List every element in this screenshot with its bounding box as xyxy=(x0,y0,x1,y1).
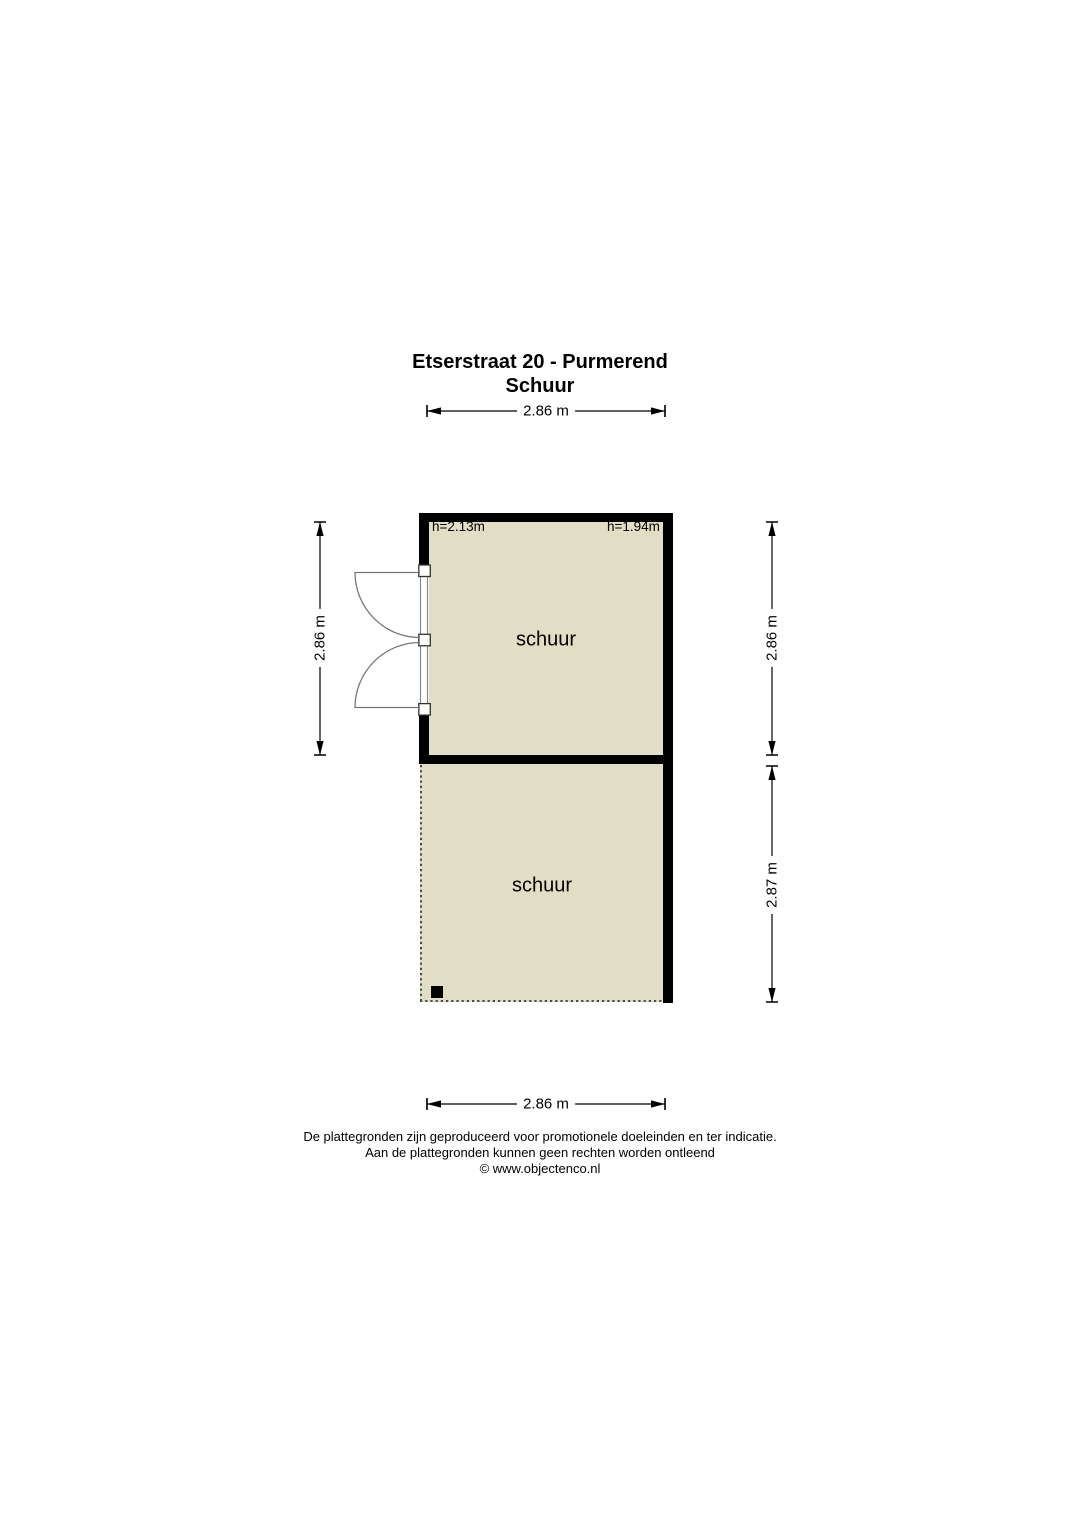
wall-right xyxy=(663,513,673,1003)
door-jamb-top xyxy=(419,565,431,577)
door-leaf-lower-swing xyxy=(355,643,420,708)
dimension-label-right-lower: 2.87 m xyxy=(764,856,781,914)
room-label-lower-schuur: schuur xyxy=(512,875,572,898)
footer-line-3: © www.objectenco.nl xyxy=(0,1161,1080,1177)
footer-line-1: De plattegronden zijn geproduceerd voor … xyxy=(0,1129,1080,1145)
floorplan-drawing xyxy=(0,0,1080,1527)
door-jamb-bottom xyxy=(419,704,431,716)
wall-divider xyxy=(419,755,673,764)
floorplan-page: Etserstraat 20 - Purmerend Schuur xyxy=(0,0,1080,1527)
wall-left-upper-segment xyxy=(419,513,429,571)
footer-line-2: Aan de plattegronden kunnen geen rechten… xyxy=(0,1145,1080,1161)
ceiling-height-right: h=1.94m xyxy=(607,519,660,534)
door-jamb-middle xyxy=(419,634,431,646)
dimension-label-bottom: 2.86 m xyxy=(517,1096,575,1113)
ceiling-height-left: h=2.13m xyxy=(432,519,485,534)
footer-disclaimer: De plattegronden zijn geproduceerd voor … xyxy=(0,1129,1080,1177)
double-door xyxy=(355,565,430,715)
dimension-label-right-upper: 2.86 m xyxy=(764,609,781,667)
room-label-upper-schuur: schuur xyxy=(516,629,576,652)
dimension-label-left: 2.86 m xyxy=(312,609,329,667)
door-leaf-upper-swing xyxy=(355,573,420,638)
column-post xyxy=(431,986,443,998)
dimension-label-top: 2.86 m xyxy=(517,403,575,420)
